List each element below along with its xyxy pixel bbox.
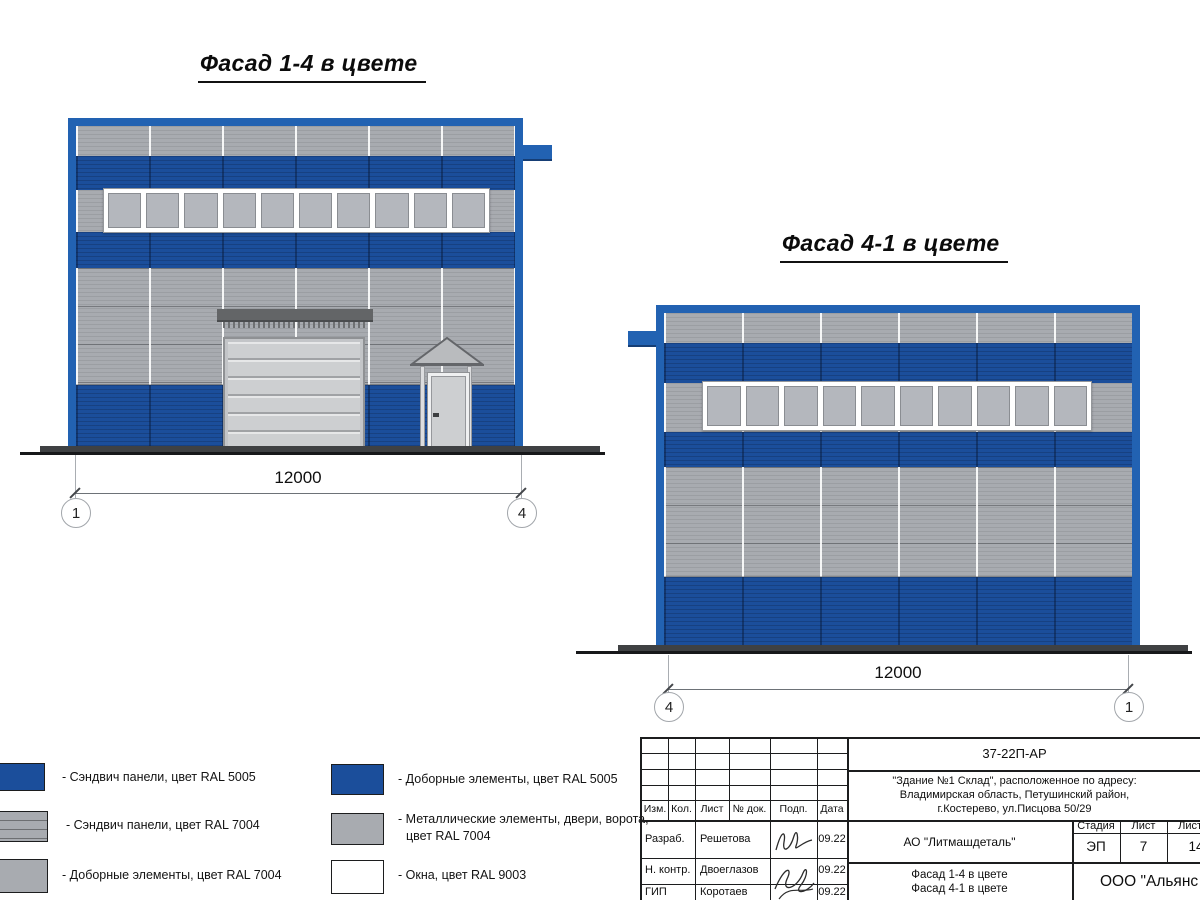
legend-swatch-ral5005 (0, 763, 45, 791)
sheet-value: 7 (1120, 833, 1167, 862)
gate-section (228, 414, 360, 432)
col-podp: Подп. (770, 800, 817, 820)
legend-label: - Металлические элементы, двери, ворота, (398, 812, 649, 826)
door-gable-canopy (410, 336, 484, 366)
name-developer: Решетова (700, 822, 770, 858)
axis-marker-1: 1 (61, 498, 91, 528)
gate-canopy-fringe (223, 322, 367, 328)
legend-label: - Сэндвич панели, цвет RAL 5005 (62, 770, 256, 784)
gate-section (228, 396, 360, 414)
window-strip (103, 188, 490, 233)
window-pane (223, 193, 256, 228)
role-gip: ГИП (645, 884, 695, 900)
date-gip: 09.22 (817, 884, 847, 900)
legend-label: - Сэндвич панели, цвет RAL 7004 (66, 818, 260, 832)
role-developer: Разраб. (645, 822, 695, 858)
dimension-line (75, 493, 521, 494)
dimension-value: 12000 (838, 663, 958, 683)
facade-4-1-title: Фасад 4-1 в цвете (780, 230, 1008, 263)
window-pane (707, 386, 741, 426)
col-izm: Изм. (642, 800, 668, 820)
name-norm-control: Двоеглазов (700, 858, 770, 884)
window-pane (746, 386, 780, 426)
window-pane (977, 386, 1011, 426)
stage-value: ЭП (1072, 833, 1120, 862)
dimension-line (668, 689, 1128, 690)
legend-label: - Доборные элементы, цвет RAL 7004 (62, 868, 282, 882)
facade-1-4-title: Фасад 1-4 в цвете (198, 50, 426, 83)
window-pane (108, 193, 141, 228)
panel-band-gray (664, 467, 1132, 577)
panel-band-blue (76, 156, 515, 190)
legend-swatch-ral7004-metal (331, 813, 384, 845)
legend-swatch-ral7004-trim (0, 859, 48, 893)
signature-icon (771, 859, 817, 900)
name-gip: Коротаев (700, 884, 770, 900)
company-name: ООО "Альянс (1100, 862, 1200, 900)
sheets-label: Листов (1167, 820, 1200, 833)
client-name: АО "Литмашдеталь" (847, 822, 1072, 862)
window-pane (184, 193, 217, 228)
axis-marker-4: 4 (507, 498, 537, 528)
window-pane (337, 193, 370, 228)
door-handle-icon (433, 413, 439, 417)
facade-4-1-drawing (656, 305, 1140, 653)
sheet-title: Фасад 1-4 в цвете Фасад 4-1 в цвете (847, 862, 1072, 900)
drawing-sheet: Фасад 1-4 в цвете Фасад 4-1 в цвете (0, 0, 1200, 900)
panel-band-blue (76, 232, 515, 268)
project-address: "Здание №1 Склад", расположенное по адре… (847, 772, 1182, 820)
legend-swatch-ral5005-trim (331, 764, 384, 795)
window-pane (1054, 386, 1088, 426)
panel-band-blue (664, 343, 1132, 383)
dimension-value: 12000 (238, 468, 358, 488)
signature-icon (772, 824, 816, 858)
gate-section (228, 342, 360, 360)
gate-section (228, 360, 360, 378)
sectional-gate (223, 337, 365, 453)
window-strip (702, 381, 1092, 431)
entrance-door (427, 372, 470, 453)
axis-marker-1: 1 (1114, 692, 1144, 722)
legend-swatch-ral9003 (331, 860, 384, 894)
window-pane (299, 193, 332, 228)
window-pane (261, 193, 294, 228)
title-block: Изм. Кол. Лист № док. Подп. Дата Разраб.… (640, 737, 1200, 900)
address-line: "Здание №1 Склад", расположенное по адре… (892, 775, 1136, 789)
window-pane (146, 193, 179, 228)
panel-band-gray (664, 313, 1132, 343)
sheets-value: 14 (1167, 833, 1200, 862)
window-pane (861, 386, 895, 426)
door-leaf (431, 376, 466, 449)
window-pane (414, 193, 447, 228)
sheet-title-line: Фасад 1-4 в цвете (911, 868, 1007, 882)
drainpipe-icon (523, 145, 552, 161)
address-line: Владимирская область, Петушинский район, (900, 789, 1129, 803)
sheet-title-line: Фасад 4-1 в цвете (911, 882, 1007, 896)
canopy-post (420, 366, 425, 453)
axis-marker-4: 4 (654, 692, 684, 722)
facade-1-4-drawing (68, 118, 523, 453)
col-kol: Кол. (668, 800, 695, 820)
ground-line (20, 452, 605, 455)
window-pane (784, 386, 818, 426)
legend-label: - Доборные элементы, цвет RAL 5005 (398, 772, 618, 786)
col-list: Лист (695, 800, 729, 820)
doc-number: 37-22П-АР (847, 739, 1182, 770)
col-doc: № док. (729, 800, 770, 820)
window-pane (900, 386, 934, 426)
date-developer: 09.22 (817, 822, 847, 858)
col-data: Дата (817, 800, 847, 820)
address-line: г.Костерево, ул.Писцова 50/29 (938, 803, 1092, 817)
sheet-label: Лист (1120, 820, 1167, 833)
ground-line (576, 651, 1192, 654)
gate-canopy (217, 309, 373, 322)
legend-label: цвет RAL 7004 (406, 829, 491, 843)
window-pane (823, 386, 857, 426)
legend-label: - Окна, цвет RAL 9003 (398, 868, 526, 882)
panel-band-gray (76, 126, 515, 156)
role-norm-control: Н. контр. (645, 858, 695, 884)
stage-label: Стадия (1072, 820, 1120, 833)
panel-band-blue (664, 577, 1132, 653)
window-pane (1015, 386, 1049, 426)
drainpipe-icon (628, 331, 656, 347)
facade-panels (664, 313, 1132, 653)
window-pane (375, 193, 408, 228)
window-pane (452, 193, 485, 228)
date-norm-control: 09.22 (817, 858, 847, 884)
gate-section (228, 378, 360, 396)
legend-swatch-ral7004-panels (0, 811, 48, 842)
panel-band-blue (664, 432, 1132, 467)
window-pane (938, 386, 972, 426)
